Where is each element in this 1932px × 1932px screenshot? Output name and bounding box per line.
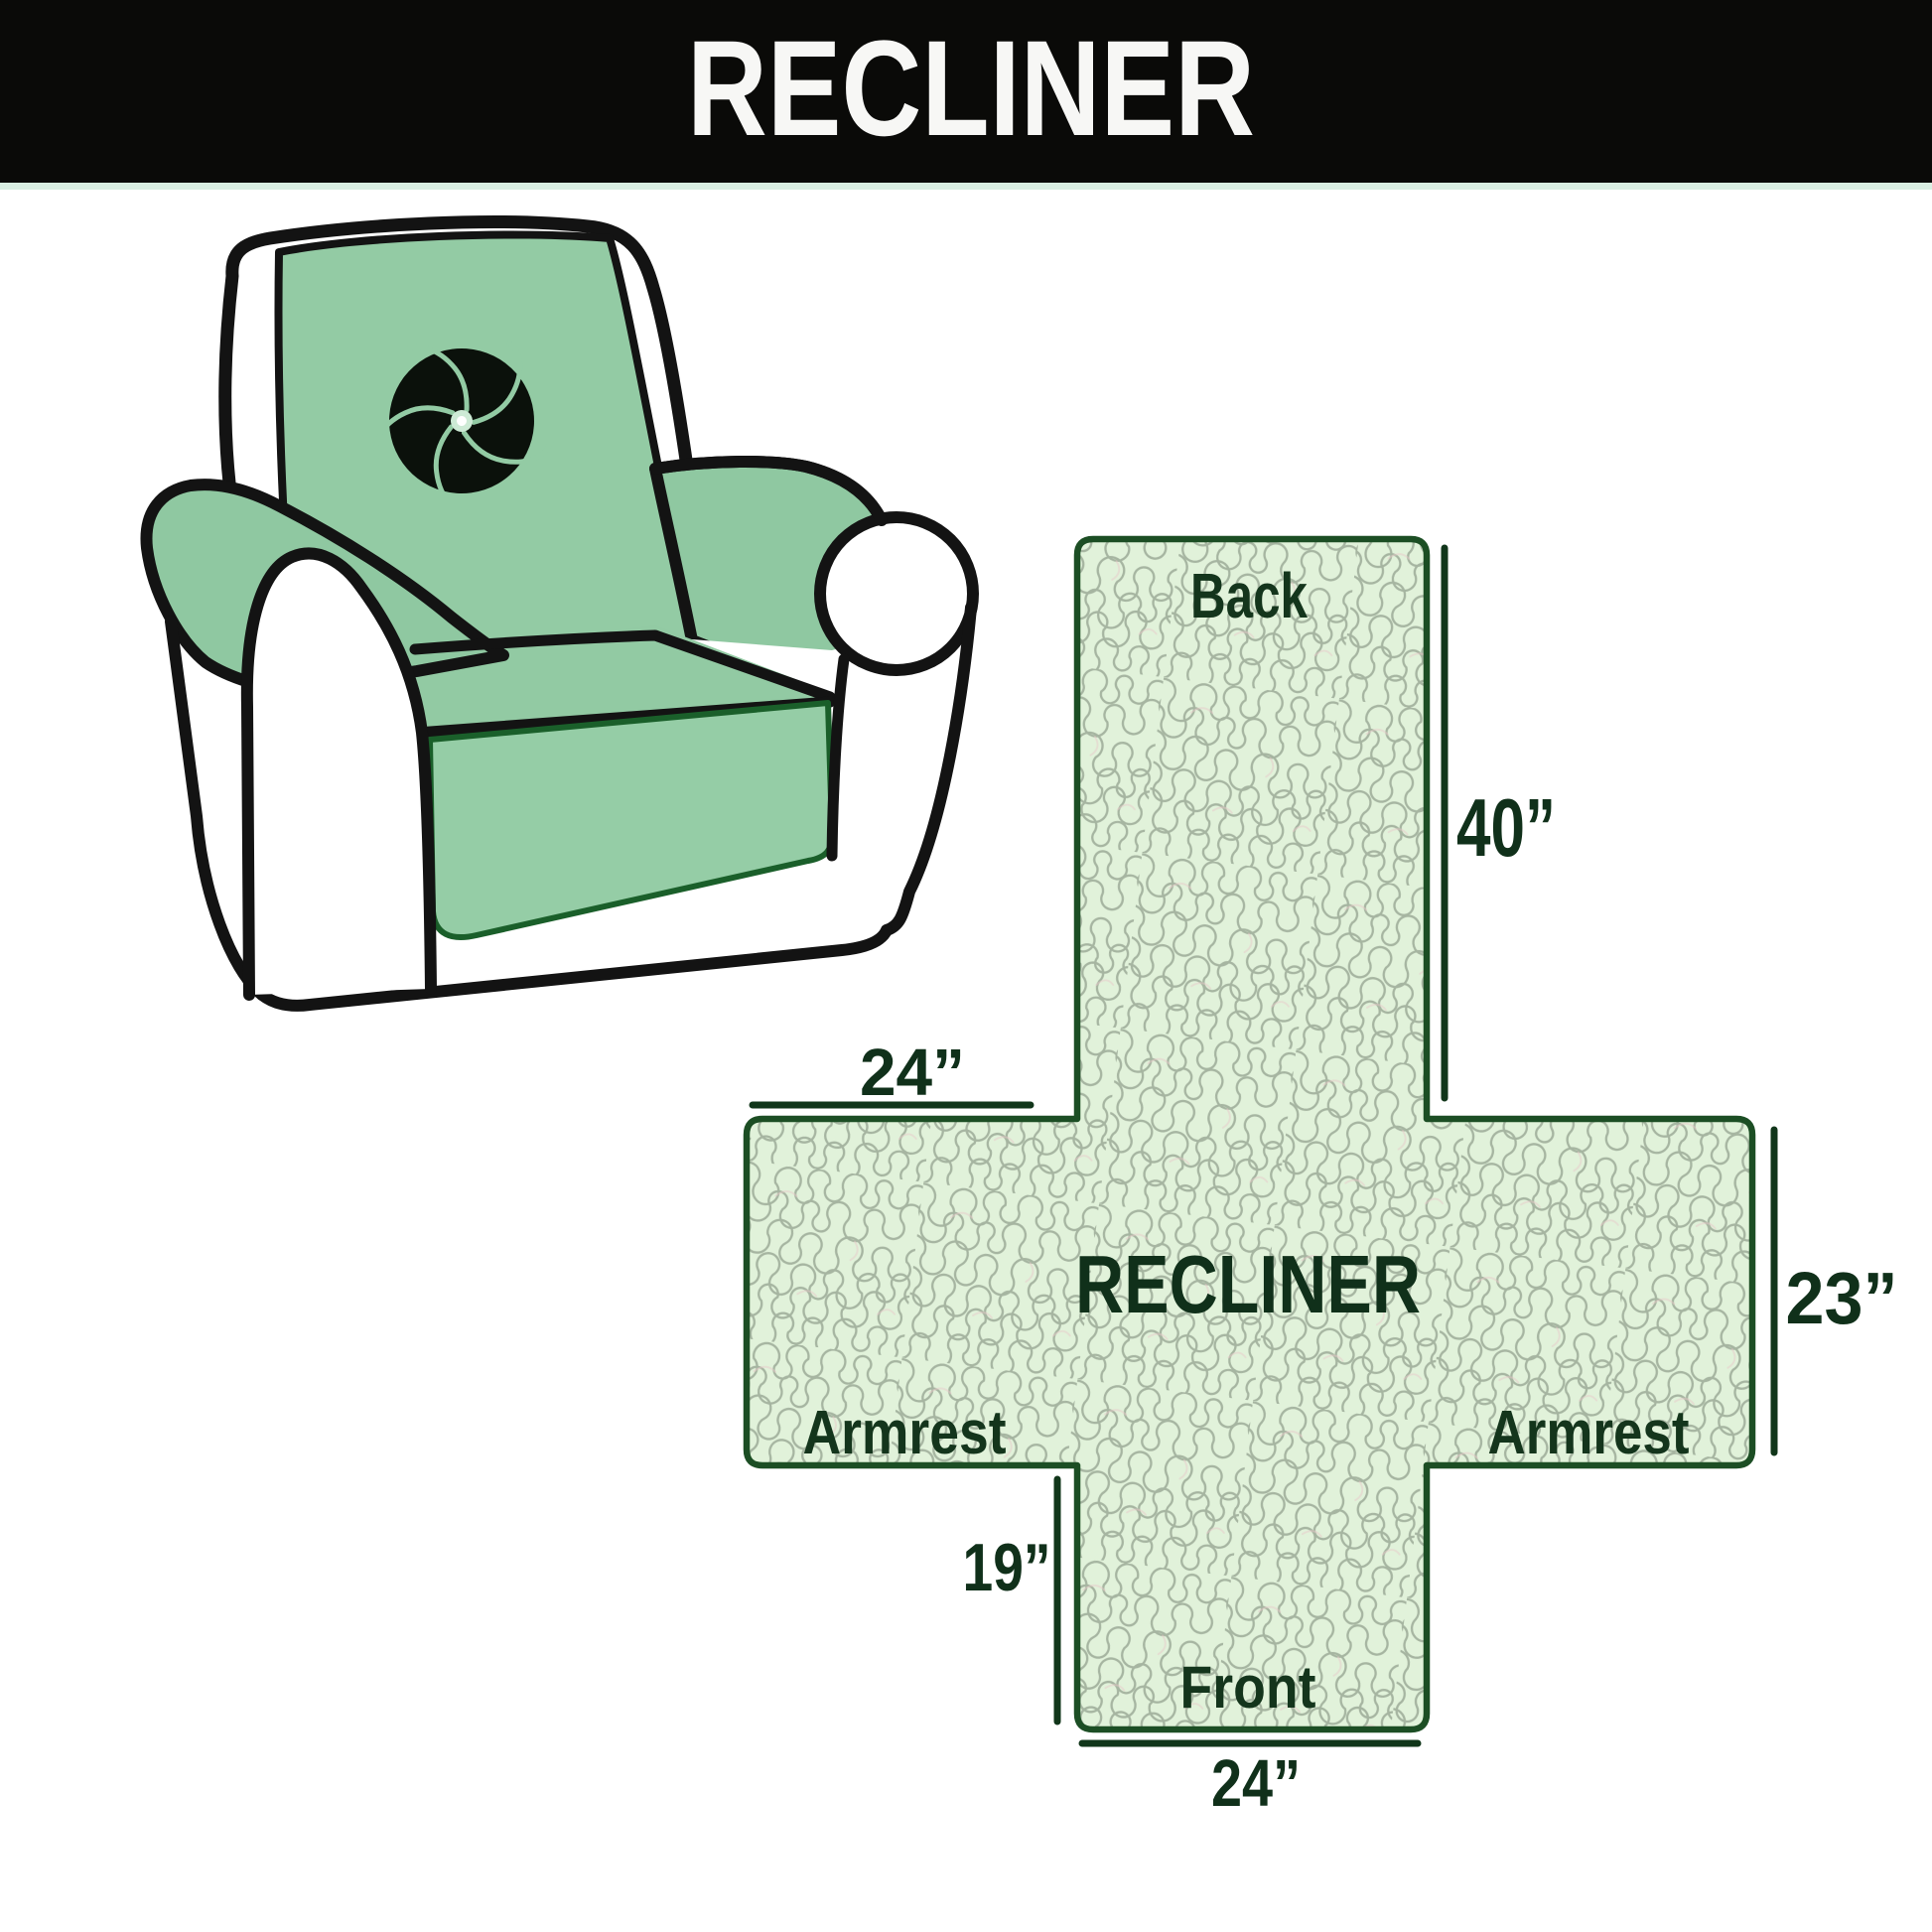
svg-text:RECLINER: RECLINER <box>1075 1238 1421 1330</box>
svg-text:24”: 24” <box>1211 1746 1301 1821</box>
svg-text:40”: 40” <box>1456 781 1556 874</box>
svg-text:Armrest: Armrest <box>803 1399 1007 1467</box>
svg-text:19”: 19” <box>963 1530 1051 1605</box>
svg-text:23”: 23” <box>1786 1257 1898 1339</box>
svg-text:24”: 24” <box>860 1035 965 1110</box>
svg-text:Back: Back <box>1190 560 1308 631</box>
svg-text:RECLINER: RECLINER <box>687 13 1255 165</box>
svg-text:Front: Front <box>1180 1654 1316 1721</box>
svg-text:Armrest: Armrest <box>1488 1399 1690 1467</box>
